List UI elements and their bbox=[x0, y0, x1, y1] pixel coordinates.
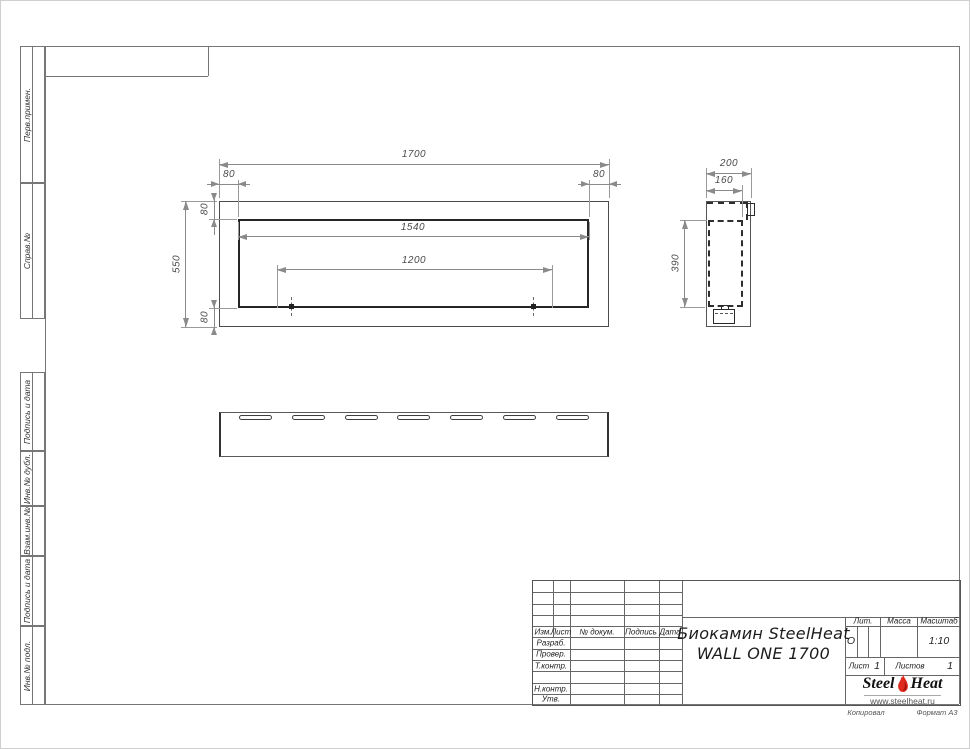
row-label-n-kontr: Н.контр. bbox=[534, 685, 568, 694]
vent-slot bbox=[556, 415, 589, 420]
vent-slot bbox=[292, 415, 325, 420]
margin-cell-sprav-no: Справ.№ bbox=[20, 183, 45, 319]
footer-kopiroval: Копировал bbox=[847, 708, 884, 717]
side-hidden-top-line bbox=[707, 202, 746, 204]
dimension-label-80-right: 80 bbox=[593, 169, 605, 180]
dimension-label-80-left: 80 bbox=[223, 169, 235, 180]
top-box-right-line bbox=[208, 46, 209, 76]
dimension-line-1540 bbox=[238, 236, 589, 237]
mount-hole-left bbox=[289, 304, 294, 309]
vent-slot bbox=[397, 415, 430, 420]
logo-text-steel: Steel bbox=[863, 676, 895, 692]
side-burner-box bbox=[713, 309, 735, 324]
title-block-line bbox=[845, 626, 960, 627]
title-block: Изм. Лист № докум. Подпись Дата Разраб. … bbox=[532, 580, 961, 706]
dimension-line-160 bbox=[706, 190, 742, 191]
lit-value: О bbox=[847, 635, 855, 647]
mount-hole-right bbox=[531, 304, 536, 309]
margin-label: Взам.инв.№ bbox=[22, 507, 32, 555]
vent-slot bbox=[239, 415, 272, 420]
arrowhead bbox=[238, 181, 246, 187]
arrowhead bbox=[211, 300, 217, 308]
steelheat-logo: Steel Heat bbox=[863, 674, 943, 694]
dimension-label-390: 390 bbox=[671, 254, 682, 272]
row-label-t-kontr: Т.контр. bbox=[535, 662, 567, 671]
col-header-podpis: Подпись bbox=[625, 628, 657, 637]
list-value: 1 bbox=[874, 660, 880, 672]
title-block-line bbox=[570, 581, 571, 705]
side-burner-knob bbox=[721, 305, 729, 310]
logo-url: www.steelheat.ru bbox=[864, 695, 941, 706]
col-header-dokum: № докум. bbox=[579, 628, 614, 637]
listov-label: Листов bbox=[895, 662, 924, 671]
masshtab-header: Масштаб bbox=[920, 617, 957, 626]
document-title-line1: Биокамин SteelHeat bbox=[677, 624, 850, 644]
arrowhead bbox=[211, 327, 217, 335]
row-label-razrab: Разраб. bbox=[537, 639, 566, 648]
title-block-line bbox=[880, 617, 881, 657]
title-block-line bbox=[845, 657, 960, 658]
row-label-prover: Провер. bbox=[536, 650, 566, 659]
frame-left-line bbox=[45, 46, 46, 704]
footer-format: Формат А3 bbox=[916, 708, 957, 717]
arrowhead bbox=[211, 193, 217, 201]
dimension-label-80-top: 80 bbox=[200, 203, 211, 215]
extension-line bbox=[589, 222, 590, 240]
vent-slot bbox=[345, 415, 378, 420]
listov-value: 1 bbox=[947, 660, 953, 672]
extension-line bbox=[742, 185, 743, 217]
drawing-sheet: Перв.примен. Справ.№ Подпись и дата Инв.… bbox=[0, 0, 970, 749]
dimension-label-80-bottom: 80 bbox=[200, 311, 211, 323]
dimension-label-1700: 1700 bbox=[402, 149, 426, 160]
side-burner-hidden-line bbox=[715, 313, 733, 314]
dimension-label-1200: 1200 bbox=[402, 255, 426, 266]
logo-text-heat: Heat bbox=[911, 676, 943, 692]
margin-label: Инв.№ подл. bbox=[22, 640, 32, 690]
col-header-izm: Изм. bbox=[534, 628, 551, 637]
side-hidden-body-rect bbox=[708, 220, 743, 307]
list-label: Лист bbox=[849, 662, 870, 671]
vent-slot bbox=[450, 415, 483, 420]
margin-cell-podpis-data-2: Подпись и дата bbox=[20, 556, 45, 626]
logo-cell: Steel Heat www.steelheat.ru bbox=[845, 675, 960, 705]
dimension-line-550 bbox=[185, 201, 186, 327]
top-box-bottom-line bbox=[45, 76, 208, 77]
title-block-line bbox=[624, 581, 625, 705]
dimension-label-200: 200 bbox=[720, 158, 738, 169]
title-block-line bbox=[857, 626, 858, 657]
frame-top-line bbox=[45, 46, 959, 47]
margin-cell-perv-primen: Перв.примен. bbox=[20, 46, 45, 183]
massa-header: Масса bbox=[887, 617, 911, 626]
dimension-line-200 bbox=[706, 173, 751, 174]
dimension-label-550: 550 bbox=[172, 255, 183, 273]
margin-cell-podpis-data-1: Подпись и дата bbox=[20, 372, 45, 451]
arrowhead bbox=[581, 181, 589, 187]
dimension-line-1700 bbox=[219, 164, 609, 165]
lit-header: Лит. bbox=[854, 617, 873, 626]
dimension-line-390 bbox=[684, 220, 685, 307]
title-block-line bbox=[917, 617, 918, 657]
extension-line bbox=[751, 168, 752, 198]
document-title-cell: Биокамин SteelHeat WALL ONE 1700 bbox=[682, 617, 845, 705]
title-block-line bbox=[884, 657, 885, 675]
margin-label: Перв.примен. bbox=[22, 87, 32, 141]
margin-label: Справ.№ bbox=[22, 233, 32, 269]
extension-line bbox=[609, 159, 610, 198]
dimension-label-1540: 1540 bbox=[401, 222, 425, 233]
dimension-line-1200 bbox=[277, 269, 552, 270]
title-block-line bbox=[659, 581, 660, 705]
document-title-line2: WALL ONE 1700 bbox=[697, 644, 830, 664]
title-block-line bbox=[868, 626, 869, 657]
margin-label: Подпись и дата bbox=[22, 559, 32, 623]
extension-line bbox=[589, 180, 590, 217]
side-bracket bbox=[747, 203, 755, 216]
row-label-utv: Утв. bbox=[542, 695, 560, 704]
margin-cell-inv-no-dubl: Инв.№ дубл. bbox=[20, 451, 45, 506]
masshtab-value: 1:10 bbox=[929, 635, 949, 647]
margin-cell-inv-no-podl: Инв.№ подл. bbox=[20, 626, 45, 705]
extension-line bbox=[680, 307, 705, 308]
arrowhead bbox=[211, 219, 217, 227]
vent-slot-row bbox=[239, 415, 589, 420]
margin-cell-vzam-inv-no: Взам.инв.№ bbox=[20, 506, 45, 556]
dimension-label-160: 160 bbox=[715, 175, 733, 186]
arrowhead bbox=[609, 181, 617, 187]
flame-icon bbox=[896, 674, 910, 694]
margin-label: Инв.№ дубл. bbox=[22, 454, 32, 504]
vent-slot bbox=[503, 415, 536, 420]
arrowhead bbox=[211, 181, 219, 187]
margin-label: Подпись и дата bbox=[22, 379, 32, 443]
extension-line bbox=[552, 265, 553, 308]
col-header-list: Лист bbox=[551, 628, 572, 637]
